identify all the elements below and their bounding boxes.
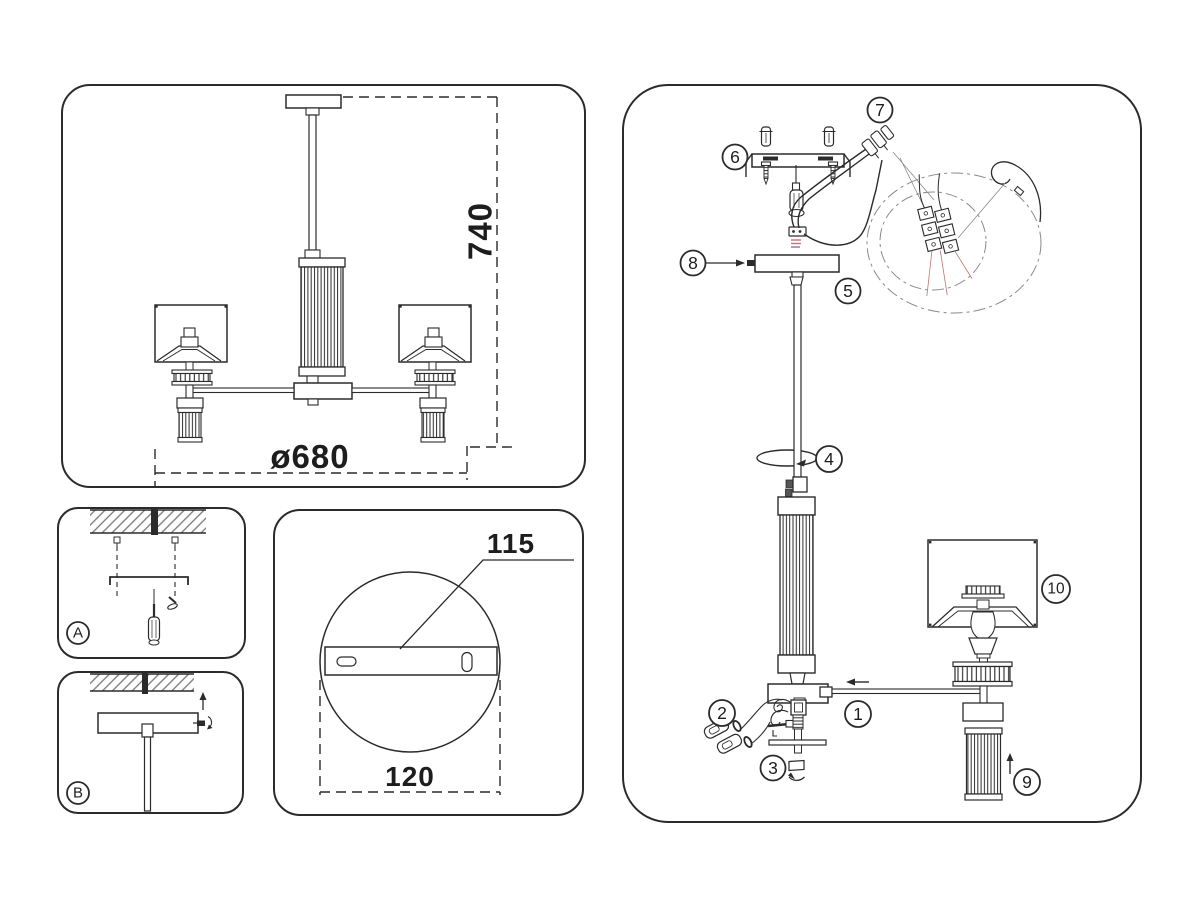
center-hub — [294, 383, 352, 399]
svg-text:6: 6 — [730, 147, 740, 167]
ceiling-anchor — [142, 672, 148, 694]
left-socket — [184, 328, 195, 337]
svg-text:3: 3 — [768, 758, 778, 778]
svg-text:9: 9 — [1022, 772, 1032, 792]
ceiling-anchor — [151, 508, 158, 535]
ceiling-plate — [286, 95, 341, 108]
threaded-stud — [793, 715, 803, 729]
bulb-neck — [977, 600, 989, 609]
ceiling-hatch — [90, 510, 206, 533]
right-gear-ring — [415, 370, 455, 385]
right-arm — [352, 388, 432, 393]
cover-plate — [769, 740, 826, 745]
callout-5: 5 — [836, 279, 861, 304]
svg-text:10: 10 — [1047, 581, 1065, 598]
gear-ring — [953, 662, 1012, 686]
right-pendant-cylinder — [421, 408, 445, 442]
callout-7: 7 — [868, 98, 893, 123]
canopy-plate — [755, 255, 839, 272]
left-arm — [191, 388, 294, 393]
dim-bracket-label: 115 — [487, 528, 535, 559]
panel-canopy-view: 115 120 — [274, 510, 583, 815]
callout-6: 6 — [723, 145, 748, 170]
svg-text:8: 8 — [688, 253, 698, 273]
bulb — [971, 612, 995, 638]
dim-diameter-label: ø680 — [270, 438, 349, 475]
svg-text:1: 1 — [853, 704, 863, 724]
arm-socket — [820, 687, 832, 697]
callout-4: 4 — [816, 446, 842, 472]
slot-vertical — [462, 653, 472, 672]
instruction-sheet: 740 ø680 — [0, 0, 1200, 900]
svg-text:4: 4 — [824, 449, 834, 469]
center-column — [778, 497, 815, 684]
panel-step-b: B — [58, 672, 243, 813]
step-a-label: A — [73, 625, 83, 642]
diagram-canvas: 740 ø680 — [0, 0, 1200, 900]
callout-2: 2 — [709, 700, 735, 726]
svg-text:2: 2 — [717, 703, 727, 723]
pendant-cylinder — [965, 728, 1002, 800]
arm-block — [963, 703, 1003, 721]
hanging-rod — [794, 285, 801, 477]
hanging-rod — [145, 737, 151, 811]
svg-text:5: 5 — [843, 281, 853, 301]
dim-height-label: 740 — [462, 202, 499, 260]
svg-text:7: 7 — [875, 100, 885, 120]
right-socket — [428, 328, 439, 337]
hanging-rod — [309, 115, 316, 250]
socket-mount — [966, 586, 1000, 594]
dim-plate-label: 120 — [385, 761, 435, 792]
left-pendant-cylinder — [178, 408, 202, 442]
panel-exploded-view: 1 2 3 4 5 6 7 8 9 10 — [623, 85, 1141, 822]
callout-1: 1 — [845, 701, 871, 727]
panel-step-a: A — [58, 508, 245, 658]
panel-front-view: 740 ø680 — [62, 85, 585, 487]
step-b-label: B — [73, 785, 83, 802]
callout-3: 3 — [761, 756, 786, 781]
center-column — [299, 258, 345, 383]
callout-9: 9 — [1014, 769, 1040, 795]
left-gear-ring — [172, 370, 212, 385]
lamp-arm — [832, 689, 980, 694]
callout-10: 10 — [1042, 575, 1070, 603]
slot-horizontal — [337, 657, 356, 666]
callout-8: 8 — [681, 251, 706, 276]
